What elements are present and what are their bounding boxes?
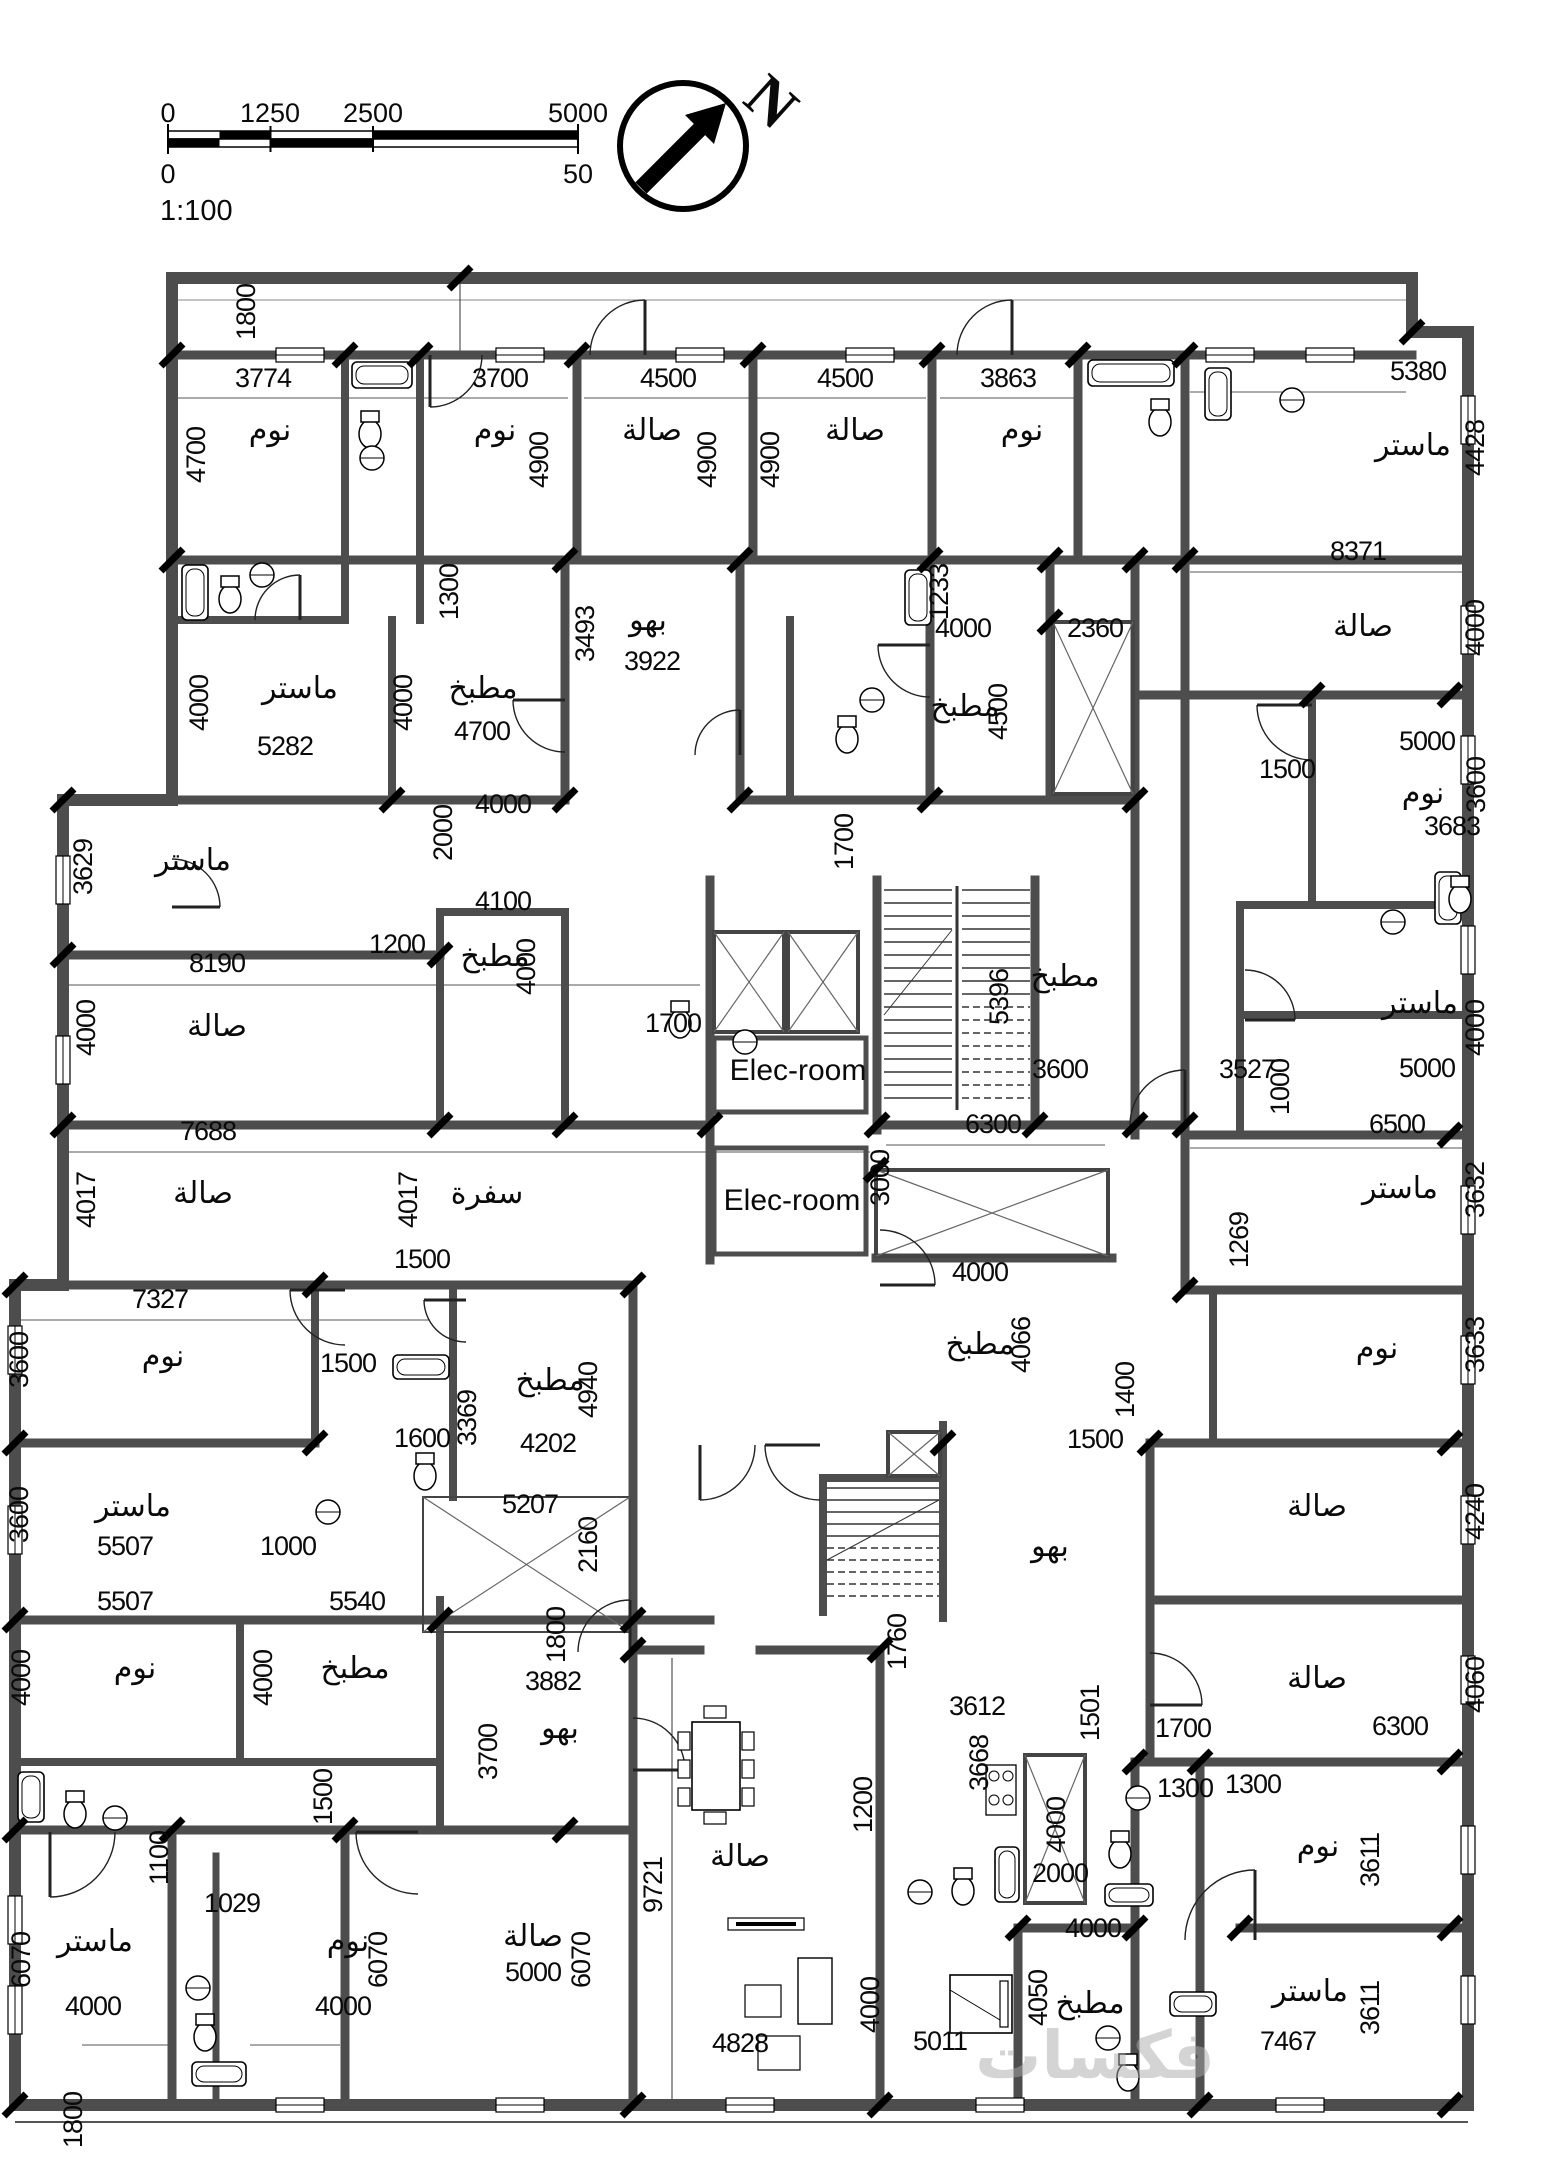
dimension-label: 6070 (566, 1932, 596, 1988)
dimension-label: 4000 (248, 1650, 278, 1706)
dimension-label: 5380 (1390, 356, 1446, 386)
dimension-label: 3369 (452, 1390, 482, 1446)
dimension-label: 1269 (1224, 1212, 1254, 1268)
dimension-label: 4000 (935, 613, 991, 643)
room-label: نوم (1402, 776, 1444, 811)
dimension-label: 7467 (1260, 2026, 1316, 2056)
room-label: صالة (1333, 609, 1393, 644)
floorplan-page: 1:100 N 0125025005000050 18003774نوم4700… (0, 0, 1541, 2176)
dimension-label: 7327 (132, 1284, 188, 1314)
scale-tick-bottom: 50 (563, 159, 593, 189)
room-label: نوم (1356, 1331, 1398, 1366)
room-label: نوم (249, 413, 291, 448)
elec-room-label: Elec-room (724, 1184, 861, 1217)
dimension-label: 1500 (394, 1244, 450, 1274)
dimension-label: 3863 (980, 363, 1036, 393)
dimension-label: 5000 (1399, 726, 1455, 756)
dimension-label: 4900 (755, 432, 785, 488)
dimension-label: 1233 (924, 564, 954, 620)
dimension-label: 3668 (964, 1735, 994, 1791)
dimension-label: 4000 (952, 1257, 1008, 1287)
dimension-label: 5011 (913, 2026, 967, 2056)
dimension-label: 1400 (1110, 1362, 1140, 1418)
dimension-label: 1800 (58, 2092, 88, 2148)
dimension-label: 6500 (1369, 1109, 1425, 1139)
dimension-label: 4000 (1460, 1000, 1490, 1056)
dimension-label: 4500 (640, 363, 696, 393)
dimension-label: 3700 (473, 1724, 503, 1780)
dimension-label: 1029 (204, 1888, 260, 1918)
dimension-label: 4900 (692, 432, 722, 488)
dimension-label: 5507 (97, 1531, 153, 1561)
dimension-label: 4428 (1460, 420, 1490, 476)
dimension-label: 3683 (1424, 811, 1480, 841)
dimension-label: 4017 (393, 1172, 423, 1228)
room-label: سفرة (451, 1176, 524, 1211)
dimension-label: 6300 (965, 1109, 1021, 1139)
room-label: ماستر (260, 671, 338, 706)
dimension-label: 2000 (1032, 1858, 1088, 1888)
room-label: ماستر (93, 1489, 171, 1524)
dimension-label: 3611 (1355, 1833, 1385, 1887)
dimension-label: 4000 (1460, 600, 1490, 656)
dimension-label: 3633 (1460, 1317, 1490, 1373)
room-label: نوم (142, 1339, 184, 1374)
room-label: بهو (539, 1711, 579, 1746)
dimension-label: 1500 (320, 1348, 376, 1378)
dimension-label: 1700 (645, 1008, 701, 1038)
room-label: ماستر (1373, 428, 1451, 463)
room-label: ماستر (1380, 986, 1458, 1021)
dimension-label: 4060 (1460, 1657, 1490, 1713)
room-label: صالة (187, 1009, 247, 1044)
scale-ratio: 1:100 (160, 195, 233, 227)
dimension-label: 3000 (865, 1150, 895, 1206)
dimension-label: 3611 (1355, 1981, 1385, 2035)
room-label: نوم (474, 413, 516, 448)
room-label: صالة (1287, 1661, 1347, 1696)
dimension-label: 1300 (1157, 1773, 1213, 1803)
dimension-label: 4000 (6, 1650, 36, 1706)
dimension-label: 1300 (1225, 1769, 1281, 1799)
dimension-label: 4700 (181, 427, 211, 483)
dimension-label: 2360 (1067, 613, 1123, 643)
dimension-label: 4100 (475, 886, 531, 916)
dimension-label: 3600 (1461, 757, 1491, 813)
dimension-label: 1100 (144, 1831, 174, 1885)
room-label: ماستر (1270, 1974, 1348, 2009)
dimension-label: 1000 (260, 1531, 316, 1561)
dimension-label: 4000 (475, 789, 531, 819)
room-label: نوم (1297, 1829, 1339, 1864)
room-label: صالة (503, 1919, 563, 1954)
dimension-label: 7688 (180, 1116, 236, 1146)
room-label: صالة (173, 1176, 233, 1211)
dimension-label: 4900 (524, 432, 554, 488)
room-label: بهو (627, 603, 667, 638)
scale-tick-bottom: 0 (160, 159, 175, 189)
dimension-label: 3882 (525, 1666, 581, 1696)
dimension-label: 5540 (329, 1586, 385, 1616)
room-label: مطبخ (1055, 1986, 1124, 2021)
scale-bar: 1:100 (160, 124, 578, 227)
dimension-label: 3612 (949, 1691, 1005, 1721)
dimension-label: 4066 (1006, 1317, 1036, 1373)
dimension-label: 1500 (1067, 1424, 1123, 1454)
dimension-label: 4000 (855, 1977, 885, 2033)
room-label: مطبخ (945, 1327, 1014, 1362)
dimension-label: 4000 (511, 939, 541, 995)
dimension-label: 4202 (520, 1428, 576, 1458)
watermark: فكسات (975, 2017, 1215, 2094)
dimension-label: 1500 (308, 1769, 338, 1825)
dimension-label: 5507 (97, 1586, 153, 1616)
dimension-label: 1700 (829, 814, 859, 870)
dimension-label: 4940 (573, 1362, 603, 1418)
dimension-label: 5396 (984, 969, 1014, 1025)
room-label: بهو (1029, 1529, 1069, 1564)
room-label: صالة (622, 413, 682, 448)
dimension-label: 2000 (428, 805, 458, 861)
scale-tick-top: 2500 (343, 98, 403, 128)
scale-tick-top: 1250 (240, 98, 300, 128)
dimension-label: 3600 (4, 1332, 34, 1388)
dimension-label: 3700 (472, 363, 528, 393)
north-compass-icon: N (620, 62, 810, 209)
dimension-label: 4700 (454, 716, 510, 746)
room-label: نوم (1001, 413, 1043, 448)
room-label: ماستر (153, 843, 231, 878)
room-label: صالة (710, 1839, 770, 1874)
dimension-label: 3632 (1460, 1162, 1490, 1218)
dimension-label: 1000 (1265, 1059, 1295, 1115)
room-label: ماستر (55, 1924, 133, 1959)
dimension-label: 4828 (712, 2028, 768, 2058)
dimension-label: 4500 (817, 363, 873, 393)
dimension-label: 8371 (1330, 536, 1386, 566)
dimension-label: 4000 (65, 1991, 121, 2021)
dimension-label: 5207 (502, 1489, 558, 1519)
dimension-label: 1500 (1259, 754, 1315, 784)
room-label: ماستر (1360, 1171, 1438, 1206)
dimension-label: 2160 (573, 1517, 603, 1573)
dimension-label: 5000 (1399, 1053, 1455, 1083)
dimension-label: 4017 (71, 1172, 101, 1228)
scale-tick-top: 0 (160, 98, 175, 128)
dimension-label: 4000 (315, 1991, 371, 2021)
dimension-label: 3629 (68, 839, 98, 895)
dimension-label: 3493 (570, 606, 600, 662)
dimension-label: 6070 (363, 1932, 393, 1988)
dimension-label: 9721 (638, 1857, 668, 1913)
room-label: نوم (114, 1651, 156, 1686)
dimension-label: 1800 (541, 1607, 571, 1663)
dimension-label: 1800 (231, 284, 261, 340)
scale-tick-top: 5000 (548, 98, 608, 128)
dimension-label: 4000 (1065, 1913, 1121, 1943)
dimension-label: 1501 (1075, 1685, 1105, 1741)
dimension-label: 8190 (189, 948, 245, 978)
dimension-label: 5000 (505, 1957, 561, 1987)
dimension-label: 4240 (1460, 1484, 1490, 1540)
dimension-label: 1760 (882, 1614, 912, 1670)
dimension-label: 4000 (388, 675, 418, 731)
dimension-label: 4000 (184, 675, 214, 731)
dimension-label: 3600 (4, 1487, 34, 1543)
dimension-label: 4000 (71, 1000, 101, 1056)
dimension-label: 1700 (1155, 1713, 1211, 1743)
dimension-label: 5282 (257, 731, 313, 761)
room-label: مطبخ (320, 1651, 389, 1686)
dimension-label: 1200 (848, 1777, 878, 1833)
room-label: صالة (1287, 1489, 1347, 1524)
elec-room-label: Elec-room (730, 1054, 867, 1087)
room-label: صالة (825, 413, 885, 448)
dimension-label: 1200 (369, 929, 425, 959)
dimension-label: 6070 (6, 1932, 36, 1988)
dimension-label: 3600 (1032, 1054, 1088, 1084)
dimension-label: 4000 (1041, 1797, 1071, 1853)
room-label: مطبخ (448, 671, 517, 706)
room-label: مطبخ (1030, 959, 1099, 994)
floorplan-canvas: 1:100 N 0125025005000050 18003774نوم4700… (0, 0, 1541, 2176)
dimension-label: 3922 (624, 646, 680, 676)
dimension-label: 4500 (983, 684, 1013, 740)
dimension-label: 6300 (1372, 1711, 1428, 1741)
dimension-label: 1300 (434, 564, 464, 620)
dimension-label: 1600 (394, 1423, 450, 1453)
dimension-label: 3774 (235, 363, 292, 393)
